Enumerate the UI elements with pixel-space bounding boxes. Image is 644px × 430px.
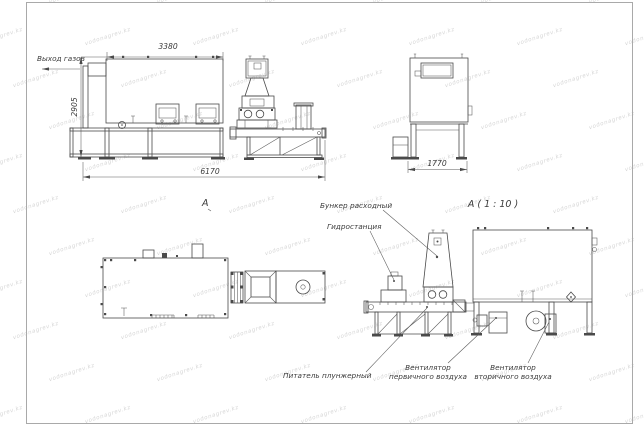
drawing-canvas: Выход газов 3380 2905 (0, 0, 644, 430)
plan-view (101, 244, 326, 318)
end-view: 1770 (391, 54, 472, 173)
feeder-label: Питатель плунжерный (283, 371, 372, 380)
fan-secondary-label-line2: вторичного воздуха (474, 372, 551, 381)
dim-front-height: 2905 (70, 97, 79, 116)
dim-front-width: 3380 (158, 42, 177, 51)
fan-secondary-label-line1: Вентилятор (490, 363, 536, 372)
hydro-label: Гидростанция (327, 222, 382, 231)
annotations: А А ( 1 : 10 ) Бункер расходный Гидроста… (201, 198, 552, 381)
drawing-border (27, 3, 633, 424)
side-detail-view (364, 227, 597, 337)
dim-end-width: 1770 (427, 159, 446, 168)
fan-primary-label-line1: Вентилятор (405, 363, 451, 372)
gas-outlet-label: Выход газов (37, 54, 85, 63)
view-a-label: А (201, 198, 209, 209)
bunker-label: Бункер расходный (320, 201, 392, 210)
front-view: Выход газов 3380 2905 (37, 42, 326, 181)
dim-overall-length: 6170 (200, 167, 219, 176)
fan-primary-label-line2: первичного воздуха (389, 372, 467, 381)
view-a-scale-label: А ( 1 : 10 ) (467, 199, 518, 210)
